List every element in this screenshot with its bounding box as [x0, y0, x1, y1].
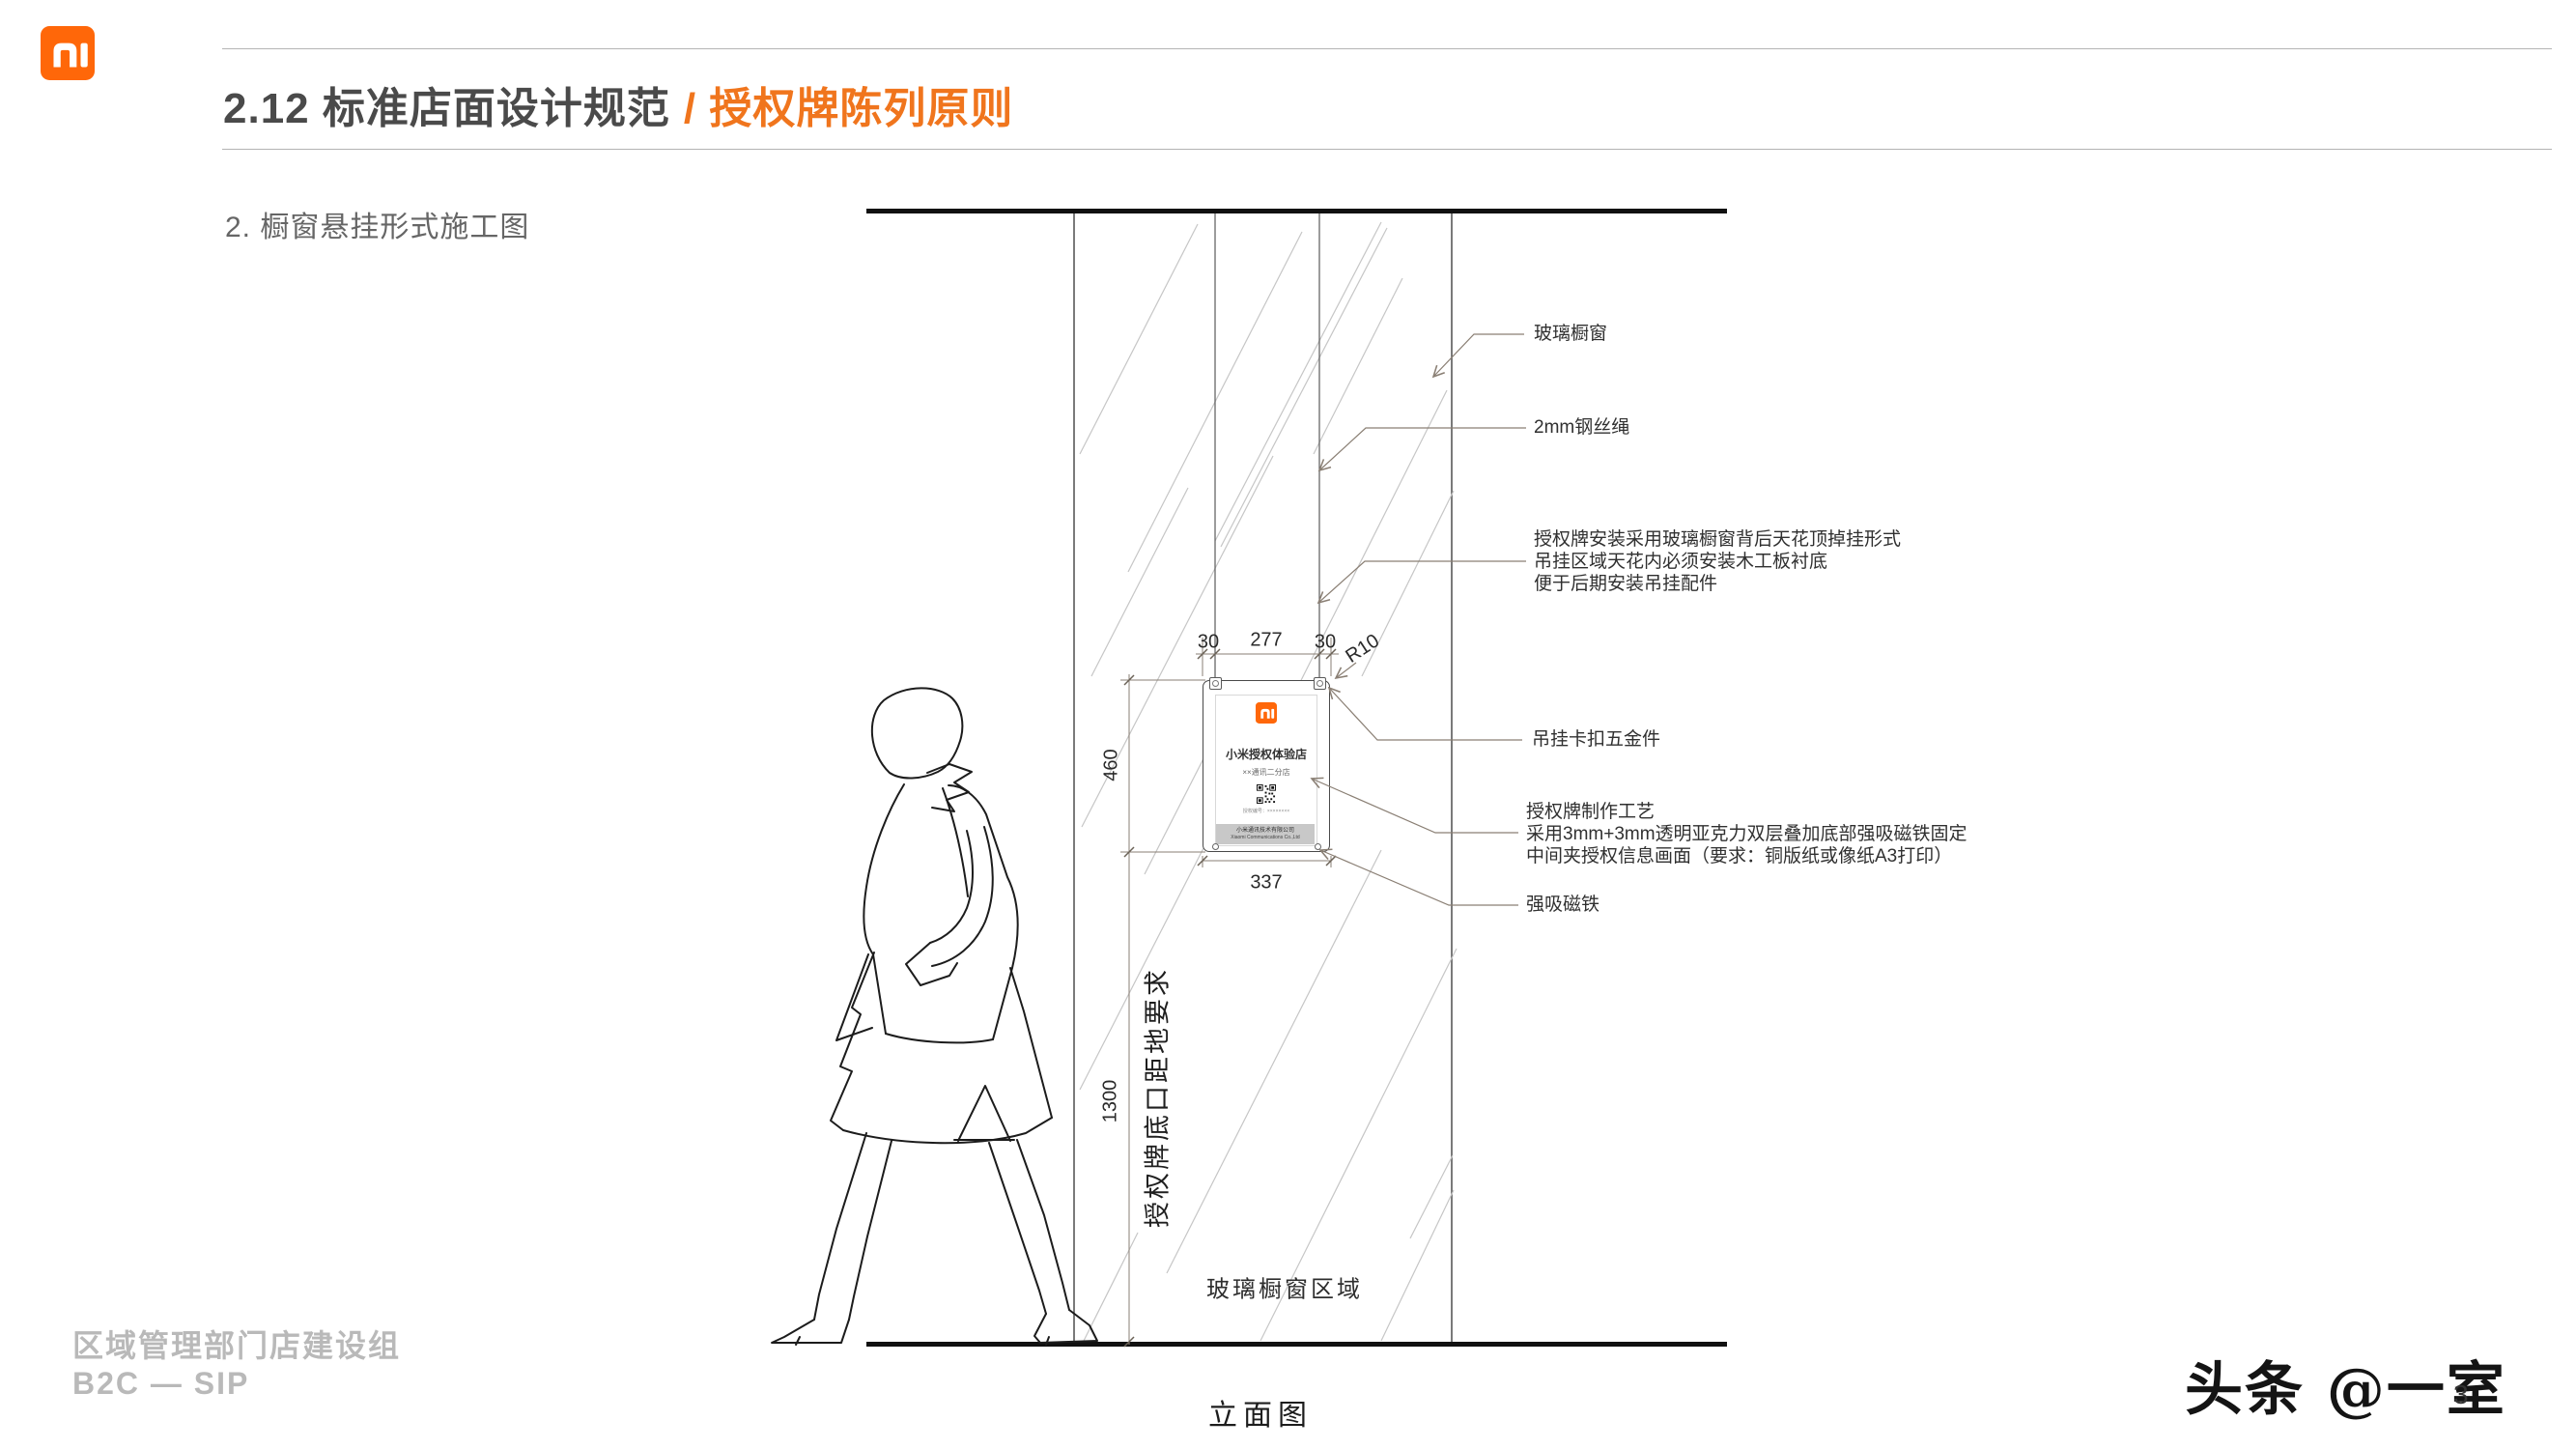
- page-number: 3: [2453, 1379, 2469, 1410]
- note-craft-line3: 中间夹授权信息画面（要求：铜版纸或像纸A3打印）: [1526, 845, 1952, 867]
- footer-channel: B2C — SIP: [72, 1366, 249, 1402]
- dim-offset-left: 30: [1198, 632, 1219, 654]
- height-requirement-label: 授权牌底口距地要求: [1137, 967, 1175, 1228]
- slide-page: 2.12 标准店面设计规范/ 授权牌陈列原则 2. 橱窗悬挂形式施工图: [0, 0, 2576, 1449]
- footer-department: 区域管理部门店建设组: [72, 1321, 401, 1366]
- leader-lines-layer: [0, 0, 2576, 1449]
- glass-area-label: 玻璃橱窗区域: [1206, 1270, 1363, 1304]
- note-magnet: 强吸磁铁: [1526, 894, 1599, 916]
- note-install-line1: 授权牌安装采用玻璃橱窗背后天花顶掉挂形式: [1534, 528, 1901, 551]
- note-glass-window: 玻璃橱窗: [1534, 323, 1607, 345]
- dim-bottom-to-floor: 1300: [1100, 1080, 1122, 1123]
- note-hook-hardware: 吊挂卡扣五金件: [1532, 728, 1660, 751]
- annotation-leaders: [1312, 334, 1526, 905]
- note-install-line2: 吊挂区域天花内必须安装木工板衬底: [1534, 551, 1827, 573]
- dim-plaque-height: 460: [1101, 749, 1123, 781]
- note-craft-line2: 采用3mm+3mm透明亚克力双层叠加底部强吸磁铁固定: [1526, 823, 1967, 845]
- drawing-caption: 立面图: [1208, 1391, 1313, 1434]
- note-install-line3: 便于后期安装吊挂配件: [1534, 573, 1717, 595]
- dim-offset-right: 30: [1315, 632, 1336, 654]
- note-craft-line1: 授权牌制作工艺: [1526, 801, 1655, 823]
- note-steel-wire: 2mm钢丝绳: [1534, 416, 1629, 439]
- dim-plaque-width: 337: [1250, 872, 1282, 895]
- dim-span-center: 277: [1250, 630, 1282, 652]
